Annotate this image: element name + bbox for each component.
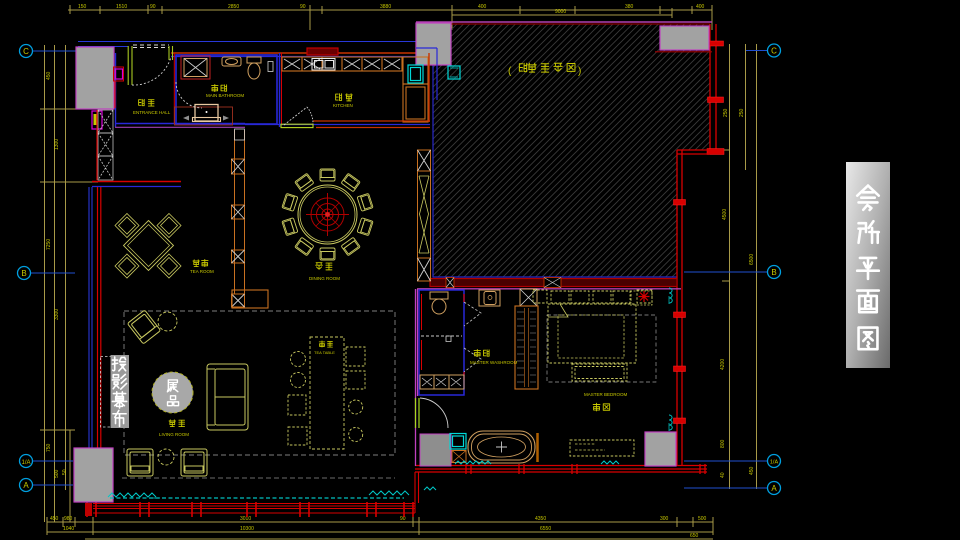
svg-text:ENTRANCE HALL: ENTRANCE HALL	[133, 110, 171, 115]
svg-text:DINING ROOM: DINING ROOM	[309, 276, 340, 281]
svg-text:1/A: 1/A	[21, 460, 30, 466]
svg-text:750: 750	[46, 443, 52, 452]
svg-text:A: A	[771, 484, 777, 493]
svg-text:3880: 3880	[380, 4, 391, 10]
svg-text:500: 500	[54, 469, 60, 478]
svg-text:500: 500	[698, 516, 707, 522]
svg-text:A: A	[23, 481, 29, 490]
svg-text:150: 150	[78, 4, 87, 10]
svg-text:250: 250	[739, 108, 745, 117]
svg-text:1510: 1510	[116, 4, 127, 10]
svg-text:250: 250	[723, 108, 729, 117]
svg-text:450: 450	[749, 466, 755, 475]
svg-text:MAIN BATHROOM: MAIN BATHROOM	[206, 93, 244, 98]
svg-text:300: 300	[660, 516, 669, 522]
svg-text:650: 650	[690, 533, 699, 539]
svg-text:): )	[578, 66, 581, 77]
svg-text:1300: 1300	[54, 139, 60, 150]
svg-text:90: 90	[300, 4, 306, 10]
svg-text:1/A: 1/A	[770, 460, 779, 466]
svg-text:3300: 3300	[54, 309, 60, 320]
svg-text:400: 400	[696, 4, 705, 10]
svg-text:90: 90	[150, 4, 156, 10]
svg-text:40: 40	[720, 472, 726, 478]
svg-text:450: 450	[46, 71, 52, 80]
svg-text:2850: 2850	[228, 4, 239, 10]
svg-text:TEA ROOM: TEA ROOM	[190, 269, 214, 274]
svg-text:KITCHEN: KITCHEN	[333, 103, 353, 108]
svg-text:B: B	[771, 268, 776, 277]
svg-text:9000: 9000	[555, 9, 566, 15]
svg-text:LIVING ROOM: LIVING ROOM	[159, 432, 189, 437]
svg-text:MASTER BEDROOM: MASTER BEDROOM	[584, 392, 628, 397]
svg-text:980: 980	[64, 516, 73, 522]
svg-text:B: B	[21, 269, 26, 278]
svg-text:6500: 6500	[749, 254, 755, 265]
svg-text:C: C	[771, 47, 777, 56]
svg-text:4350: 4350	[535, 516, 546, 522]
svg-text:800: 800	[720, 439, 726, 448]
svg-text:380: 380	[625, 4, 634, 10]
svg-text:TEA TABLE: TEA TABLE	[314, 350, 335, 355]
svg-text:10300: 10300	[240, 526, 254, 532]
svg-text:1040: 1040	[63, 526, 74, 532]
svg-text:400: 400	[478, 4, 487, 10]
svg-text:3010: 3010	[240, 516, 251, 522]
svg-text:450: 450	[50, 516, 59, 522]
svg-text:C: C	[23, 47, 29, 56]
svg-text:4200: 4200	[720, 359, 726, 370]
svg-text:MASTER WASHROOM: MASTER WASHROOM	[470, 360, 518, 365]
svg-text:6550: 6550	[540, 526, 551, 532]
svg-text:7250: 7250	[46, 239, 52, 250]
svg-text:4500: 4500	[722, 209, 728, 220]
svg-text:50: 50	[62, 469, 68, 475]
svg-text:90: 90	[400, 516, 406, 522]
